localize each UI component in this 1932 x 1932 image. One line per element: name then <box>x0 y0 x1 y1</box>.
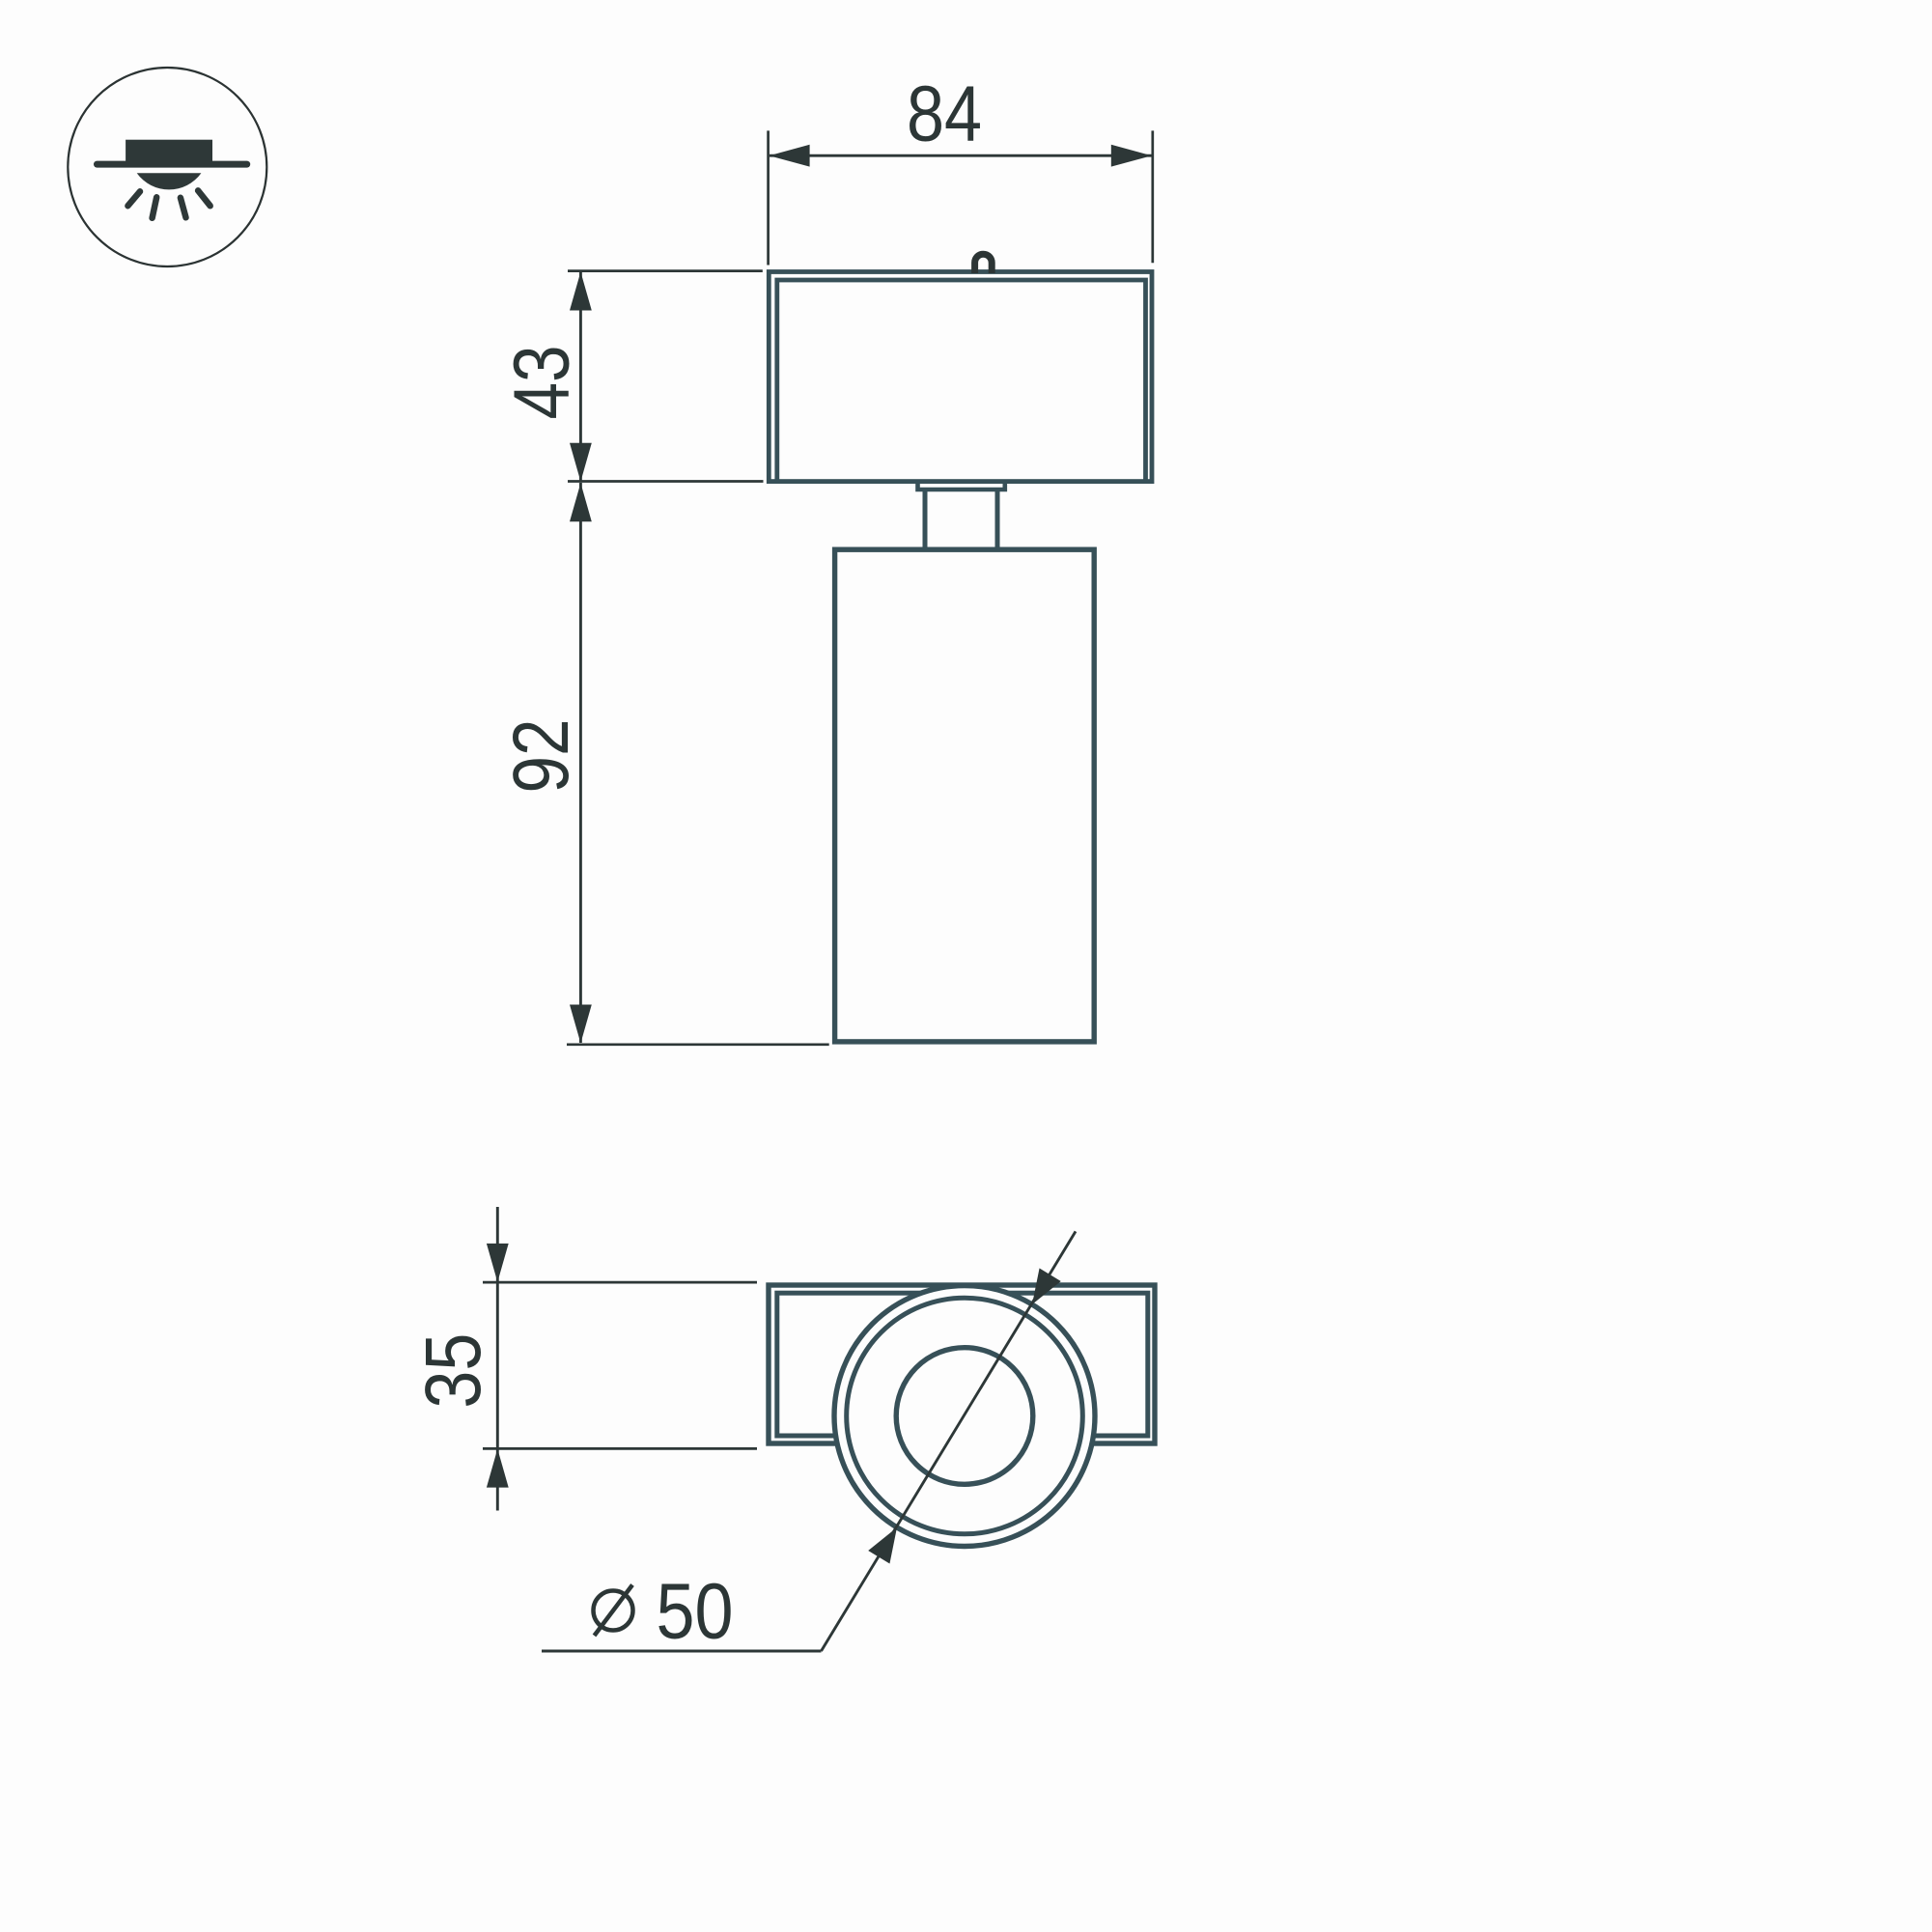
svg-text:50: 50 <box>657 1568 734 1656</box>
svg-text:84: 84 <box>907 70 982 157</box>
svg-text:43: 43 <box>498 346 586 420</box>
svg-text:35: 35 <box>409 1333 497 1409</box>
svg-text:92: 92 <box>497 719 585 794</box>
